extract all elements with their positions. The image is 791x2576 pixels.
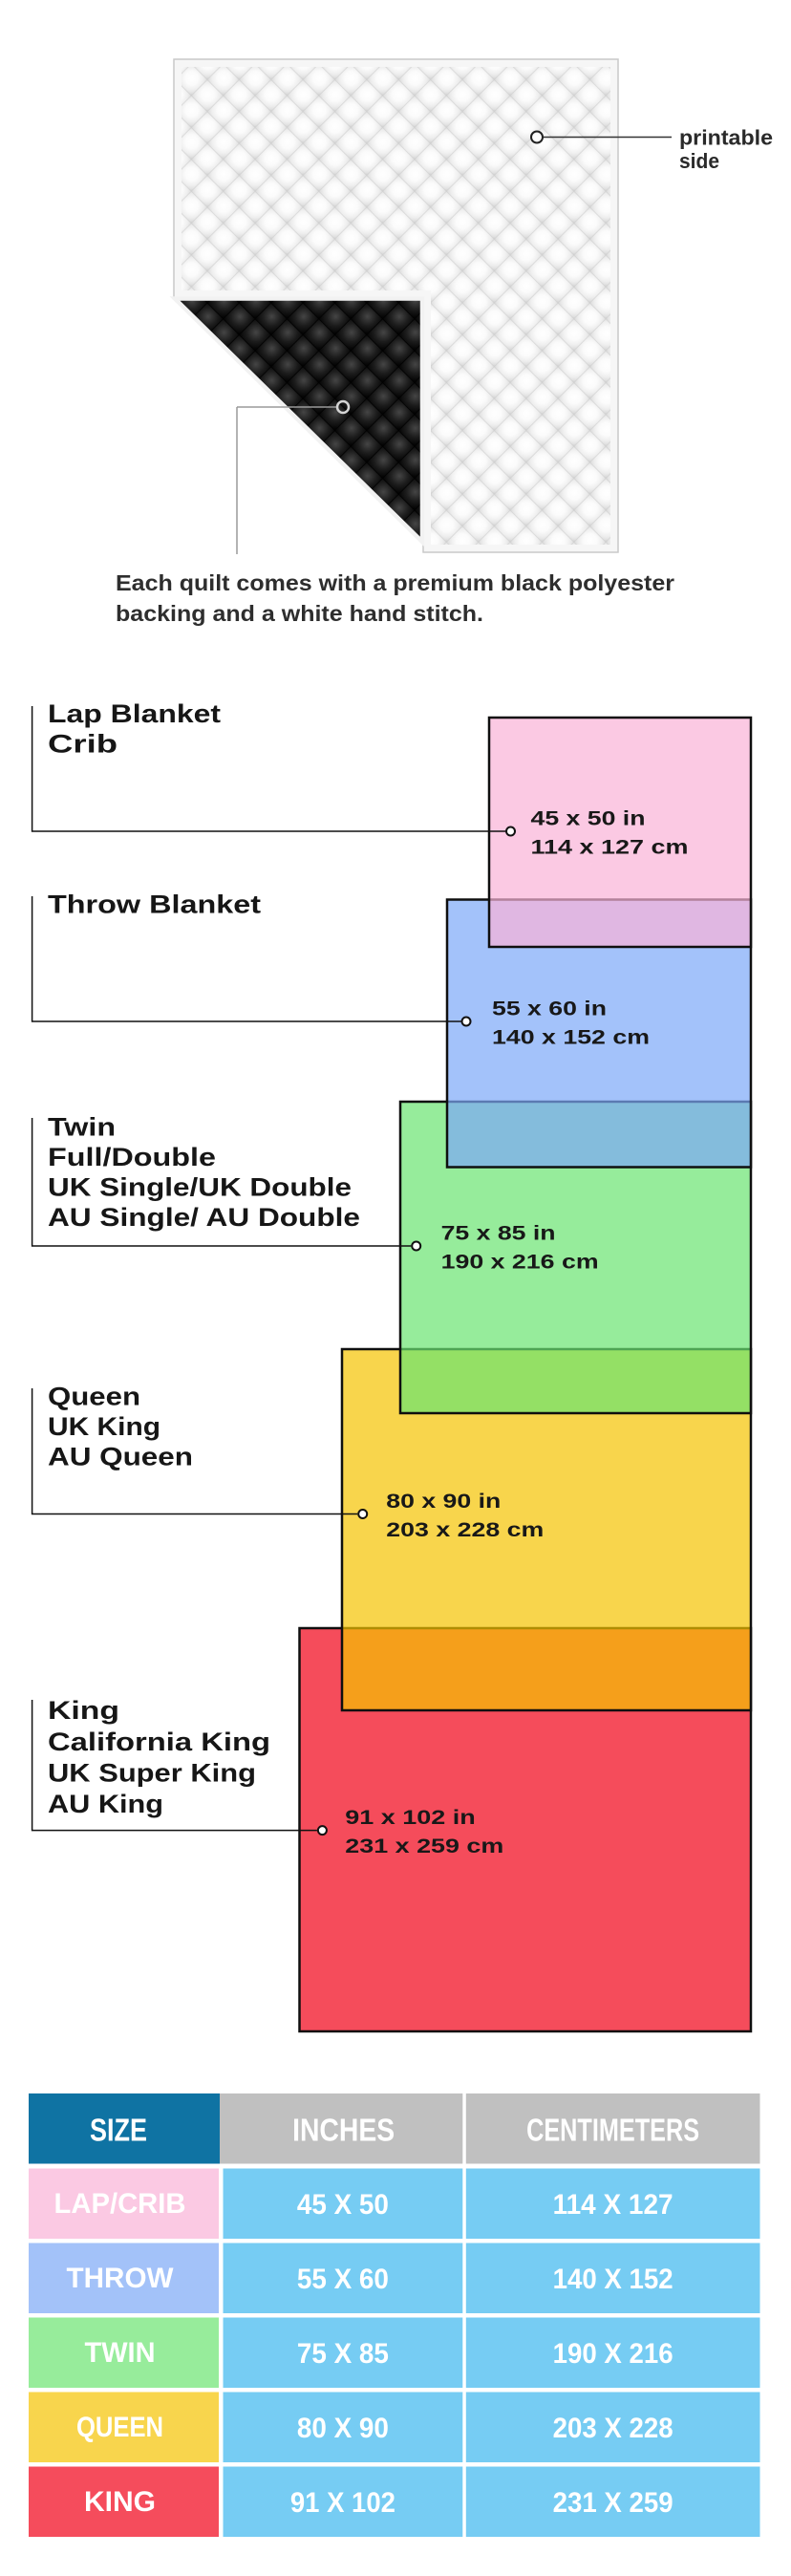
svg-text:Throw Blanket: Throw Blanket	[48, 891, 261, 919]
svg-text:QUEEN: QUEEN	[76, 2412, 163, 2443]
svg-text:INCHES: INCHES	[292, 2113, 395, 2148]
svg-text:AU Queen: AU Queen	[48, 1443, 193, 1471]
svg-text:190 X 216: 190 X 216	[553, 2338, 673, 2370]
svg-text:Queen: Queen	[48, 1383, 140, 1411]
svg-text:UK Super King: UK Super King	[48, 1759, 256, 1788]
svg-text:KING: KING	[84, 2486, 156, 2518]
svg-text:140 x 152 cm: 140 x 152 cm	[492, 1026, 650, 1049]
svg-text:55 X 60: 55 X 60	[297, 2264, 389, 2295]
svg-text:Full/Double: Full/Double	[48, 1143, 216, 1171]
svg-text:75 x 85 in: 75 x 85 in	[441, 1222, 556, 1245]
svg-text:CENTIMETERS: CENTIMETERS	[526, 2113, 699, 2148]
svg-text:80 x 90 in: 80 x 90 in	[386, 1490, 501, 1513]
svg-text:55 x 60 in: 55 x 60 in	[492, 998, 607, 1020]
svg-text:45 X 50: 45 X 50	[297, 2189, 389, 2221]
svg-text:231 x 259 cm: 231 x 259 cm	[345, 1835, 503, 1857]
svg-text:91 X 102: 91 X 102	[290, 2487, 395, 2519]
svg-text:UK Single/UK Double: UK Single/UK Double	[48, 1173, 352, 1202]
svg-text:King: King	[48, 1696, 119, 1725]
svg-text:Twin: Twin	[48, 1113, 116, 1142]
svg-text:114 X 127: 114 X 127	[553, 2189, 673, 2221]
svg-text:AU King: AU King	[48, 1790, 163, 1818]
svg-text:203 X 228: 203 X 228	[553, 2413, 673, 2444]
svg-text:190 x 216 cm: 190 x 216 cm	[441, 1251, 599, 1274]
svg-text:THROW: THROW	[67, 2263, 175, 2294]
svg-text:Each quilt comes with a premiu: Each quilt comes with a premium black po…	[116, 570, 674, 595]
svg-text:Crib: Crib	[48, 730, 118, 759]
svg-text:UK King: UK King	[48, 1412, 160, 1441]
svg-text:TWIN: TWIN	[85, 2337, 156, 2369]
svg-text:printable: printable	[679, 126, 773, 150]
svg-text:80 X 90: 80 X 90	[297, 2413, 389, 2444]
svg-text:140 X 152: 140 X 152	[553, 2264, 673, 2295]
svg-text:203 x 228 cm: 203 x 228 cm	[386, 1518, 544, 1541]
svg-text:SIZE: SIZE	[90, 2113, 147, 2148]
svg-text:LAP/CRIB: LAP/CRIB	[54, 2188, 186, 2220]
svg-text:91 x 102 in: 91 x 102 in	[345, 1806, 476, 1829]
svg-text:114 x 127 cm: 114 x 127 cm	[531, 836, 689, 859]
svg-text:backing and a white hand stitc: backing and a white hand stitch.	[116, 601, 483, 626]
svg-text:side: side	[679, 149, 719, 173]
svg-text:California King: California King	[48, 1728, 270, 1756]
svg-text:231 X 259: 231 X 259	[553, 2487, 673, 2519]
svg-text:AU Single/ AU Double: AU Single/ AU Double	[48, 1203, 360, 1232]
svg-text:75 X 85: 75 X 85	[297, 2338, 389, 2370]
svg-text:Lap Blanket: Lap Blanket	[48, 699, 221, 728]
svg-text:45 x 50 in: 45 x 50 in	[531, 807, 646, 830]
